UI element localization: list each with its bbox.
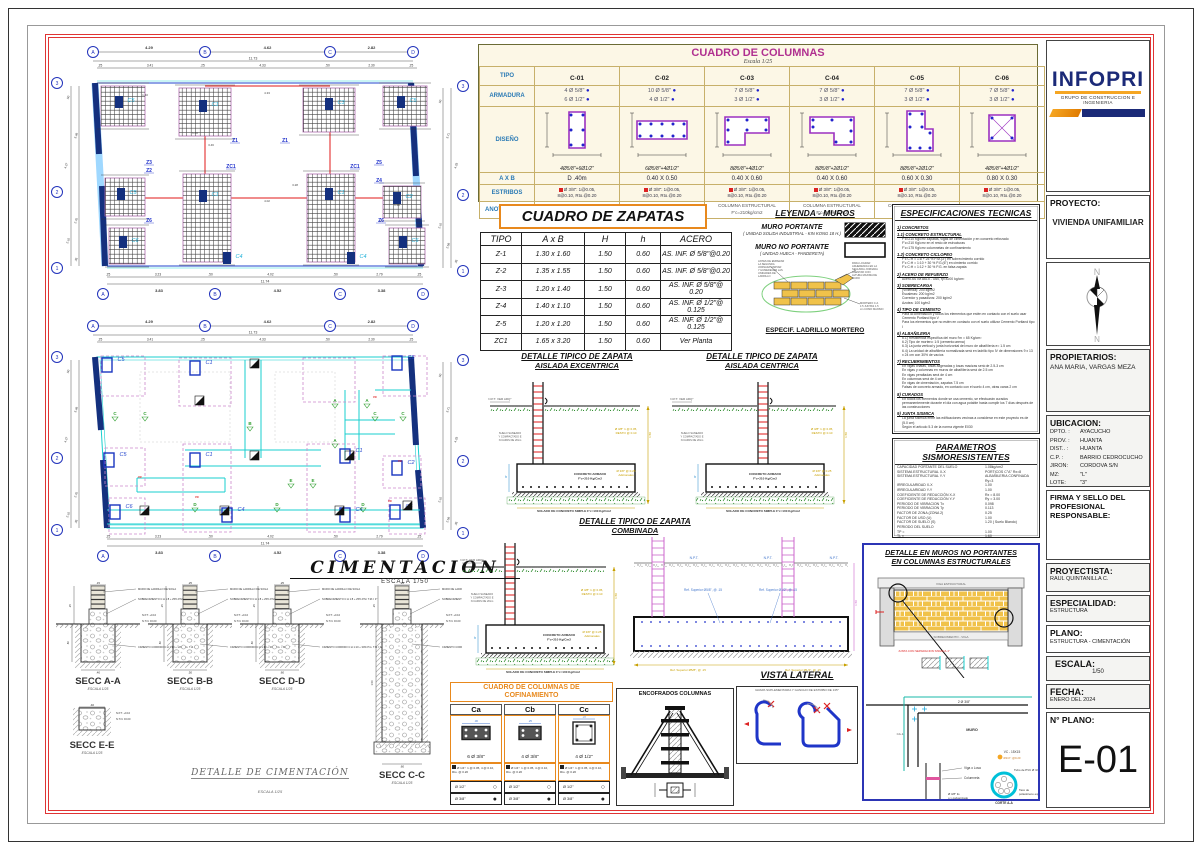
dim: 3.83 (155, 288, 164, 293)
secc-label: N.P.T. +0.10 (116, 711, 131, 715)
conf-seccion: .254 Ø 3/8" (504, 715, 556, 763)
secc-label: CIMIENTO CORRIDO C:H 1:10 + 30% P.G. T.M… (322, 645, 383, 649)
dim: 4.33 (259, 64, 265, 68)
secc-label: N.T.N. ±0.00 (326, 619, 341, 623)
especificaciones-title: ESPECIFICACIONES TECNICAS (895, 205, 1037, 221)
muros-label: poliestireno expandido (1019, 792, 1038, 796)
detalle-muros-no-portantes: DETALLE EN MUROS NO PORTANTES EN COLUMNA… (862, 543, 1040, 801)
cc-cell: 4Ø5/8"+6Ø1/2" (535, 107, 620, 173)
plano-label: PLANO: (1047, 626, 1149, 638)
cc-row-label: A X B (480, 173, 535, 185)
column-tag: C5 (407, 355, 415, 361)
dim: .35 (73, 257, 78, 263)
confinamiento-title: CUADRO DE COLUMNAS DE COFINAMIENTO (450, 682, 613, 702)
dim: .50 (208, 273, 213, 277)
proyecto-value: VIVIENDA UNIFAMILIAR (1047, 208, 1149, 229)
dim: 11.74 (261, 542, 270, 546)
section-mark: C (143, 411, 147, 416)
dim: 4.52 (274, 288, 283, 293)
det-label: Adicionales (584, 634, 600, 638)
axis-bubble: D (411, 50, 415, 56)
spec-heading: 1) CONCRETOS (897, 225, 1035, 230)
muros-label: JUNTA CON SEPARACION SISMICA 1" (898, 649, 950, 653)
detalle-centrica-l2: AISLADA CENTRICA (672, 361, 852, 370)
logo-subtitle: GRUPO DE CONSTRUCCION E INGENIERIA (1047, 95, 1149, 105)
titleblock-fecha: FECHA: ENERO DEL 2024 (1046, 684, 1150, 709)
dim: .25 (409, 64, 414, 68)
det-label: N CAPAS DE 20cm (681, 438, 704, 442)
nota-mortero: cm COMO MAXIMO (860, 307, 884, 311)
dim: .50 (437, 99, 442, 105)
spec-line: Según el artículo 5.3 de la norma vigent… (897, 425, 1035, 429)
cc-seccion-caption: 4Ø5/8"+4Ø1/2" (960, 166, 1044, 172)
cz-cell: 1.20 x 1.20 (522, 316, 585, 334)
conf-leyenda-row: Ø 3/8"● (504, 793, 556, 805)
det-label: Adicionales (814, 473, 830, 477)
ubicacion-row: DIST.. :HUANTA (1047, 445, 1149, 454)
spec-line: En todos los elementos donde se usa ceme… (897, 397, 1035, 410)
cz-cell: 1.20 x 1.40 (522, 281, 585, 299)
dim: .50 (325, 64, 330, 68)
vc-mark: VC (195, 495, 200, 499)
column-tag: C6 (125, 504, 133, 510)
dim: 3.23 (155, 535, 161, 539)
cz-cell: 1.50 (585, 298, 626, 316)
dim: 2.82 (368, 319, 377, 324)
det-label: Y COMPACTADO E (470, 596, 493, 600)
det-label: SUELO SANEADO (681, 431, 703, 435)
cz-cell: 0.60 (626, 298, 661, 316)
conf-leyenda-row: Ø 3/8"● (558, 793, 610, 805)
dim: .50 (333, 535, 338, 539)
especialidad-value: ESTRUCTURA (1047, 608, 1149, 616)
axis-bubble: 3 (56, 81, 59, 87)
column-tag: C4 (359, 254, 366, 260)
dim: 1.40 (142, 93, 148, 97)
dim: 2.58 (445, 516, 451, 523)
det-label: RESTO @ 0.10 (616, 431, 637, 435)
cuadro-columnas-table: TIPOC-01C-02C-03C-04C-05C-06ARMADURA4 Ø … (479, 66, 1045, 219)
muro-portante-swatch (844, 222, 886, 238)
parametros-title: PARAMETROS SISMORESISTENTES (895, 439, 1037, 465)
nplano-label: N° PLANO: (1047, 713, 1149, 725)
nota-der: MURO (852, 276, 860, 280)
cz-cell: 0.60 (626, 263, 661, 281)
cc-cell: 8Ø5/8"+2Ø1/2" (790, 107, 875, 173)
dim: 4.33 (453, 162, 459, 169)
cz-cell: 1.30 x 1.60 (522, 246, 585, 264)
cc-row-label: ARMADURA (480, 86, 535, 107)
cc-cell: 0.40 X 0.60 (705, 173, 790, 185)
det-label: F'c=210 Kg/Cm2 (578, 477, 602, 481)
detalle-excentrica-l1: DETALLE TIPICO DE ZAPATA (492, 352, 662, 361)
cz-cell: 1.50 (585, 263, 626, 281)
titleblock-especialidad: ESPECIALIDAD: ESTRUCTURA (1046, 595, 1150, 622)
muro-portante-label: MURO PORTANTE (740, 224, 844, 231)
especif-ladrillo: ESPECIF. LADRILLO MORTERO (740, 327, 890, 334)
cc-cell: C-05 (875, 67, 960, 86)
confinamiento-grid: Ca.306 Ø 3/8"Ø 1/4": 1 @ 0.05, 4 @ 0.10,… (450, 704, 613, 805)
det-label: CONCRETO ARMADO (574, 472, 607, 476)
muros-title-l1: DETALLE EN MUROS NO PORTANTES (864, 548, 1038, 557)
cz-cell: 1.50 (585, 281, 626, 299)
column-tag: C5 (117, 357, 125, 363)
cz-cell: 0.60 (626, 281, 661, 299)
titleblock-escala: ESCALA: 1/50 (1046, 656, 1150, 681)
plan-sheet: ABCD4.294.622.8211.73.253.41.254.33.502.… (0, 0, 1200, 848)
axis-bubble: 1 (56, 266, 59, 272)
cc-cell: Ø 3/8": 1@0.05,8@0.10, Rto.@0.20 (705, 185, 790, 202)
dim: .50 (208, 535, 213, 539)
spec-line: La junta sísmica entre las edificaciones… (897, 416, 1035, 425)
conf-acero: 4 Ø 1/2" (559, 755, 609, 760)
cc-seccion-caption: 4Ø5/8"+6Ø1/2" (535, 166, 619, 172)
secc-label: MURO DE LADRILLO DE SOGA (322, 587, 360, 591)
cc-cell: 7 Ø 5/8" ●3 Ø 1/2" ● (960, 86, 1045, 107)
dim: 2.70 (73, 217, 79, 224)
detalle-centrica-l1: DETALLE TIPICO DE ZAPATA (672, 352, 852, 361)
cz-cell: 1.50 (585, 316, 626, 334)
axis-bubble: 1 (56, 528, 59, 534)
dim: 1.50 (370, 680, 374, 686)
propietarios-label: PROPIETARIOS: (1047, 350, 1149, 362)
conf-acero: 4 Ø 3/8" (505, 755, 555, 760)
conf-seccion: .306 Ø 3/8" (450, 715, 502, 763)
titleblock-logo: INFOPRI GRUPO DE CONSTRUCCION E INGENIER… (1046, 40, 1150, 192)
dim: .50 (65, 95, 70, 101)
dim: .25 (200, 338, 205, 342)
logo-banner (1051, 109, 1145, 117)
conf-header: Cb (504, 704, 556, 715)
secc-title: SECC D-D (259, 676, 305, 687)
dim: .25 (409, 338, 414, 342)
dim: 4.02 (264, 199, 270, 203)
column-tag: C5 (119, 452, 127, 458)
spec-line: Acero ASTM A615 - G60, fy=4200 kg/cm² (897, 277, 1035, 281)
dim: 4.52 (274, 550, 283, 555)
proyectista-value: RAUL QUINTANILLA C. (1047, 576, 1149, 584)
conf-leyenda-row: Ø 3/8"● (450, 793, 502, 805)
det-label: F'c=210 Kg/Cm2 (547, 638, 571, 642)
dim: 1.50 (648, 432, 652, 438)
cuadro-zapatas-title: CUADRO DE ZAPATAS (499, 204, 707, 229)
cc-cell: Ø 3/8": 1@0.05,8@0.10, Rto.@0.20 (535, 185, 620, 202)
cz-cell: Ver Planta (661, 333, 732, 351)
cc-cell: 7 Ø 5/8" ●3 Ø 1/2" ● (875, 86, 960, 107)
cz-row: Z-31.20 x 1.401.500.60AS. INF. Ø 5/8"@ 0… (481, 281, 732, 299)
det-label: SUELO SANEADO (499, 431, 521, 435)
cc-cell: 6Ø5/8"+4Ø1/2" (620, 107, 705, 173)
cc-seccion-C-06 (962, 107, 1042, 161)
conf-col-Cc: Cc.254 Ø 1/2"Ø 1/4": 1 @ 0.05, 4 @ 0.10,… (558, 704, 610, 805)
muros-drawing-inf: 2 Ø 3/8"MUROCA-1VC - 15X15Ø1/4": @0.20Vi… (864, 683, 1038, 805)
dim: 4.33 (259, 338, 265, 342)
cz-header: A x B (522, 233, 585, 246)
conf-acero: 6 Ø 3/8" (451, 755, 501, 760)
secc-scale: ESCALA 1/25 (180, 687, 201, 691)
cz-cell: Z-2 (481, 263, 522, 281)
vista-lateral-drawing (737, 692, 857, 756)
cz-cell: Z-4 (481, 298, 522, 316)
detalle-combinada-seccion: N.P.T. VER ARQ°CONCRETO ARMADOF'c=210 Kg… (458, 533, 628, 683)
nota-izq: LADRILLO (758, 274, 771, 278)
dim: .15 (96, 581, 101, 585)
logo-infopri: INFOPRI (1047, 69, 1149, 90)
firma-label: FIRMA Y SELLO DEL PROFESIONAL RESPONSABL… (1047, 491, 1149, 520)
column-tag: C2 (407, 460, 414, 466)
dim: .25 (417, 273, 422, 277)
section-mark: E (311, 478, 314, 483)
column-tag: C5 (127, 98, 135, 104)
cz-cell: 1.50 (585, 246, 626, 264)
muro-no-portante-swatch (844, 242, 886, 258)
conf-header: Cc (558, 704, 610, 715)
muro-no-portante-sub: ( UNIDAD HUECA - PANDERETA) (740, 251, 844, 256)
dim: 3.48 (73, 406, 79, 413)
cc-cell: 7 Ø 5/8" ●3 Ø 1/2" ● (790, 86, 875, 107)
column-tag: C1 (205, 360, 212, 366)
column-tag: C1 (205, 452, 212, 458)
especialidad-label: ESPECIALIDAD: (1047, 596, 1149, 608)
cc-seccion-C-01 (537, 107, 617, 161)
cuadro-confinamiento: CUADRO DE COLUMNAS DE COFINAMIENTO Ca.30… (450, 682, 613, 805)
cz-cell: AS. INF. Ø 5/8"@ 0.20 (661, 281, 732, 299)
cz-row: Z-41.40 x 1.101.500.60AS. INF. Ø 1/2"@ 0… (481, 298, 732, 316)
axis-bubble: D (411, 324, 415, 330)
fecha-label: FECHA: (1047, 685, 1149, 697)
dim: 4.27 (63, 162, 69, 169)
det-label: Ref. Superior Ø1/2", @ .15 (759, 588, 797, 592)
dim: .60 (280, 671, 285, 675)
cc-cell: D .40m (535, 173, 620, 185)
cz-cell: 1.50 (585, 333, 626, 351)
section-mark: D (193, 502, 197, 507)
cz-cell: 1.40 x 1.10 (522, 298, 585, 316)
dim: .35 (73, 519, 78, 525)
ladrillo-sketch: ANTES DE EMPEZAR LA SEGUNDA JORNADA LIMP… (740, 258, 890, 320)
det-label: SOLADO DE CONCRETO SIMPLE F'c=100 Kg/Cm2 (726, 509, 800, 513)
cuadro-zapatas-table: TIPOA x BHhACEROZ-11.30 x 1.601.500.60AS… (480, 232, 732, 351)
det-label: SOLADO DE CONCRETO SIMPLE F'c=100 Kg/Cm2 (537, 509, 611, 513)
axis-bubble: 3 (56, 355, 59, 361)
dim: 11.73 (249, 331, 258, 335)
secc-scale: ESCALA 1/25 (82, 751, 103, 755)
dim: 4.62 (264, 319, 273, 324)
det-label: Adicionales (618, 473, 634, 477)
dim: 4.29 (145, 319, 154, 324)
vista-lateral-box: GRAPA SUPLEMENTARIA Y GANCHO DE ESTRIBO … (736, 686, 858, 764)
cc-cell: 0.60 X 0.30 (875, 173, 960, 185)
ubicacion-row: MZ:"L" (1047, 471, 1149, 480)
spec-line: F'c C:H = 1:12 + 30 % P.G. en falsa zapa… (897, 265, 1035, 269)
detalle-zapata-excentrica: N.P.T. VER ARQ°CONCRETO ARMADOF'c=210 Kg… (486, 372, 662, 520)
secc-label: N.T.N. ±0.00 (234, 619, 249, 623)
cc-cell: C-06 (960, 67, 1045, 86)
titleblock-firma: FIRMA Y SELLO DEL PROFESIONAL RESPONSABL… (1046, 490, 1150, 560)
cz-cell: AS. INF. Ø 1/2"@ 0.125 (661, 316, 732, 334)
dim: .25 (106, 535, 111, 539)
muro-portante-sub: ( UNIDAD SOLIDA INDUSTRIAL - KIN KONG 18… (740, 231, 844, 236)
leyenda-muros: LEYENDA - MUROS MURO PORTANTE ( UNIDAD S… (740, 208, 890, 334)
parametro-row: SISTEMA ESTRUCTURAL Y-YALBAÑILERIA CONFI… (893, 474, 1039, 483)
dim: 1.20 (394, 203, 400, 207)
dim: 2.10 (437, 222, 443, 229)
column-tag: C1 (211, 192, 218, 198)
cc-seccion-C-05 (877, 107, 957, 161)
cz-cell: Z-1 (481, 246, 522, 264)
escala-value: 1/50 (1047, 669, 1149, 677)
titleblock-plano: PLANO: ESTRUCTURA - CIMENTACIÓN (1046, 625, 1150, 653)
cc-cell: 4 Ø 5/8" ●6 Ø 1/2" ● (535, 86, 620, 107)
parametro-row: TL =1.60 (893, 534, 1039, 538)
conf-header: Ca (450, 704, 502, 715)
dim: .50 (188, 671, 193, 675)
det-label: F'c=210 Kg/Cm2 (753, 477, 777, 481)
column-tag: C5 (409, 98, 417, 104)
conf-col-Ca: Ca.306 Ø 3/8"Ø 1/4": 1 @ 0.05, 4 @ 0.10,… (450, 704, 502, 805)
muros-title-l2: EN COLUMNAS ESTRUCTURALES (864, 557, 1038, 566)
cz-row: Z-11.30 x 1.601.500.60AS. INF. Ø 5/8"@0.… (481, 246, 732, 264)
cc-cell: 10 Ø 5/8" ●4 Ø 1/2" ● (620, 86, 705, 107)
north-compass-icon: N N (1047, 263, 1147, 343)
axis-bubble: 1 (462, 269, 465, 275)
especificaciones-body: 1) CONCRETOS1.1) CONCRETO ESTRUCTURALF'c… (893, 221, 1039, 431)
dim: .25 (68, 604, 72, 608)
section-mark: C (401, 411, 405, 416)
dim: 3.41 (147, 338, 153, 342)
ubicacion-row: C.P. :BARRIO CEDROCUCHO (1047, 454, 1149, 463)
spec-line: F'c=175 Kg/cm² columnetas de confinamien… (897, 246, 1035, 250)
column-tag: C1 (211, 102, 218, 108)
dim: .60 (250, 641, 254, 645)
dim: 2.10 (65, 511, 71, 518)
secc-label: MURO DE LADRILLO DE SOGA (230, 587, 268, 591)
muros-label: VC - 15X15 (1004, 750, 1021, 754)
cz-cell: AS. INF. Ø 5/8"@0.20 (661, 263, 732, 281)
muros-drawing-sup: VIGA ESTRUCTURALSOBRECIMIENTO - VIGAJUNT… (864, 566, 1038, 678)
encofrados-drawing (617, 697, 733, 799)
dim: .60 (400, 765, 405, 769)
cz-cell: 0.60 (626, 246, 661, 264)
muros-label: Columneta (964, 776, 980, 780)
plano-value: ESTRUCTURA - CIMENTACIÓN (1047, 638, 1149, 647)
titleblock-nplano: N° PLANO: E-01 (1046, 712, 1150, 808)
npt-label: N.P.T. (830, 556, 839, 560)
ubicacion-row: JIRON:CORDOVA S/N (1047, 462, 1149, 471)
dim: 2.30 (368, 64, 374, 68)
dim: 1.50 (614, 593, 618, 599)
ubicacion-row: LOTE:"3" (1047, 479, 1149, 488)
vc-mark: VC (373, 395, 378, 399)
npt-label: N.P.T. (764, 556, 773, 560)
section-mark: E (289, 478, 292, 483)
column-tag: C1 (337, 190, 344, 196)
dim: 3.71 (445, 406, 451, 413)
axis-bubble: C (328, 50, 332, 56)
cz-cell: Z-5 (481, 316, 522, 334)
propietarios-value: ANA MARIA, VARGAS MEZA (1047, 362, 1149, 373)
cc-cell: Ø 3/8": 1@0.05,8@0.10, Rto.@0.20 (620, 185, 705, 202)
det-label: SOLADO DE CONCRETO SIMPLE F'c=100 Kg/Cm2 (506, 670, 580, 674)
det-label: CONCRETO ARMADO (543, 633, 576, 637)
titleblock-propietarios: PROPIETARIOS: ANA MARIA, VARGAS MEZA (1046, 349, 1150, 412)
dim: 4.02 (267, 535, 273, 539)
dim: .60 (158, 641, 162, 645)
column-tag: C3 (337, 100, 345, 106)
conf-leyenda-row: Ø 1/2"○ (558, 781, 610, 793)
confinamiento-title-l2: COFINAMIENTO (451, 692, 612, 700)
cz-cell: AS. INF. Ø 5/8"@0.20 (661, 246, 732, 264)
muros-label: CORTE A-A (995, 801, 1013, 805)
det-label: SUELO SANEADO (471, 592, 493, 596)
secc-title: SECC A-A (75, 676, 121, 687)
conf-estribos: Ø 1/4": 1 @ 0.05, 4 @ 0.10, Rto. @ 0.20 (450, 763, 502, 781)
dim: .25 (160, 604, 164, 608)
dim: 4.02 (267, 273, 273, 277)
dim: 4.33 (264, 91, 270, 95)
muros-label: Viga o Losa (964, 766, 981, 770)
cz-header: H (585, 233, 626, 246)
cc-cell: 8Ø5/8"+2Ø1/2" (875, 107, 960, 173)
dim: 3.23 (155, 273, 161, 277)
dim: 2.10 (437, 496, 443, 503)
conf-leyenda-row: Ø 1/2"○ (504, 781, 556, 793)
dim: .25 (417, 535, 422, 539)
axis-bubble: 2 (462, 459, 465, 465)
section-mark: A (365, 398, 369, 403)
dim: .50 (333, 273, 338, 277)
dim: .25 (528, 719, 532, 723)
muro-no-portante-label: MURO NO PORTANTE (740, 244, 844, 251)
cz-row: Z-21.35 x 1.551.500.60AS. INF. Ø 5/8"@0.… (481, 263, 732, 281)
cz-header: TIPO (481, 233, 522, 246)
secc-scale: ESCALA 1/25 (272, 687, 293, 691)
muros-label: Tubo de PVC Ø 3/4" (1014, 768, 1038, 772)
dim: 3.38 (378, 550, 387, 555)
detalle-combinada-elevacion: N.P.T.N.P.T.N.P.T.Ref. Superior Ø5/8", @… (628, 533, 860, 683)
conf-seccion: .254 Ø 1/2" (558, 715, 610, 763)
cc-seccion-caption: 8Ø5/8"+2Ø1/2" (790, 166, 874, 172)
column-tag: C2 (405, 194, 412, 200)
detalle-excentrica-title: DETALLE TIPICO DE ZAPATA AISLADA EXCENTR… (492, 352, 662, 370)
fecha-value: ENERO DEL 2024 (1047, 697, 1149, 705)
section-mark: A (333, 438, 337, 443)
cc-cell: 0.80 X 0.30 (960, 173, 1045, 185)
cc-seccion-caption: 6Ø5/8"+4Ø1/2" (620, 166, 704, 172)
axis-bubble: C (328, 324, 332, 330)
cc-cell: C-01 (535, 67, 620, 86)
leyenda-item-no-portante: MURO NO PORTANTE ( UNIDAD HUECA - PANDER… (740, 242, 890, 258)
detalle-cimentacion-title: DETALLE DE CIMENTACIÓN (191, 768, 349, 779)
cc-cell: C-02 (620, 67, 705, 86)
proyecto-label: PROYECTO: (1047, 196, 1149, 208)
secc-title: SECC B-B (167, 676, 213, 687)
dim: 11.74 (261, 280, 270, 284)
cuadro-zapatas: CUADRO DE ZAPATAS TIPOA x BHhACEROZ-11.3… (480, 204, 726, 351)
ubicacion-row: PROV. :HUANTA (1047, 437, 1149, 446)
dim: 3.38 (378, 288, 387, 293)
det-label: Y COMPACTADO E (498, 435, 521, 439)
dim: 2.70 (73, 491, 79, 498)
dim: 2.79 (376, 273, 382, 277)
det-label: Ref. Superior Ø5/8", @ .15 (684, 588, 722, 592)
muros-label: VIGA ESTRUCTURAL (936, 582, 966, 586)
muros-label: Ø1/4": @0.20 (1004, 756, 1021, 760)
column-tag: C6 (411, 238, 419, 244)
muros-label: 2 Ø 3/8" (958, 700, 971, 704)
cuadro-columnas-scale: Escala 1/25 (479, 59, 1037, 65)
cc-cell: Ø 3/8": 1@0.05,8@0.10, Rto.@0.20 (960, 185, 1045, 202)
